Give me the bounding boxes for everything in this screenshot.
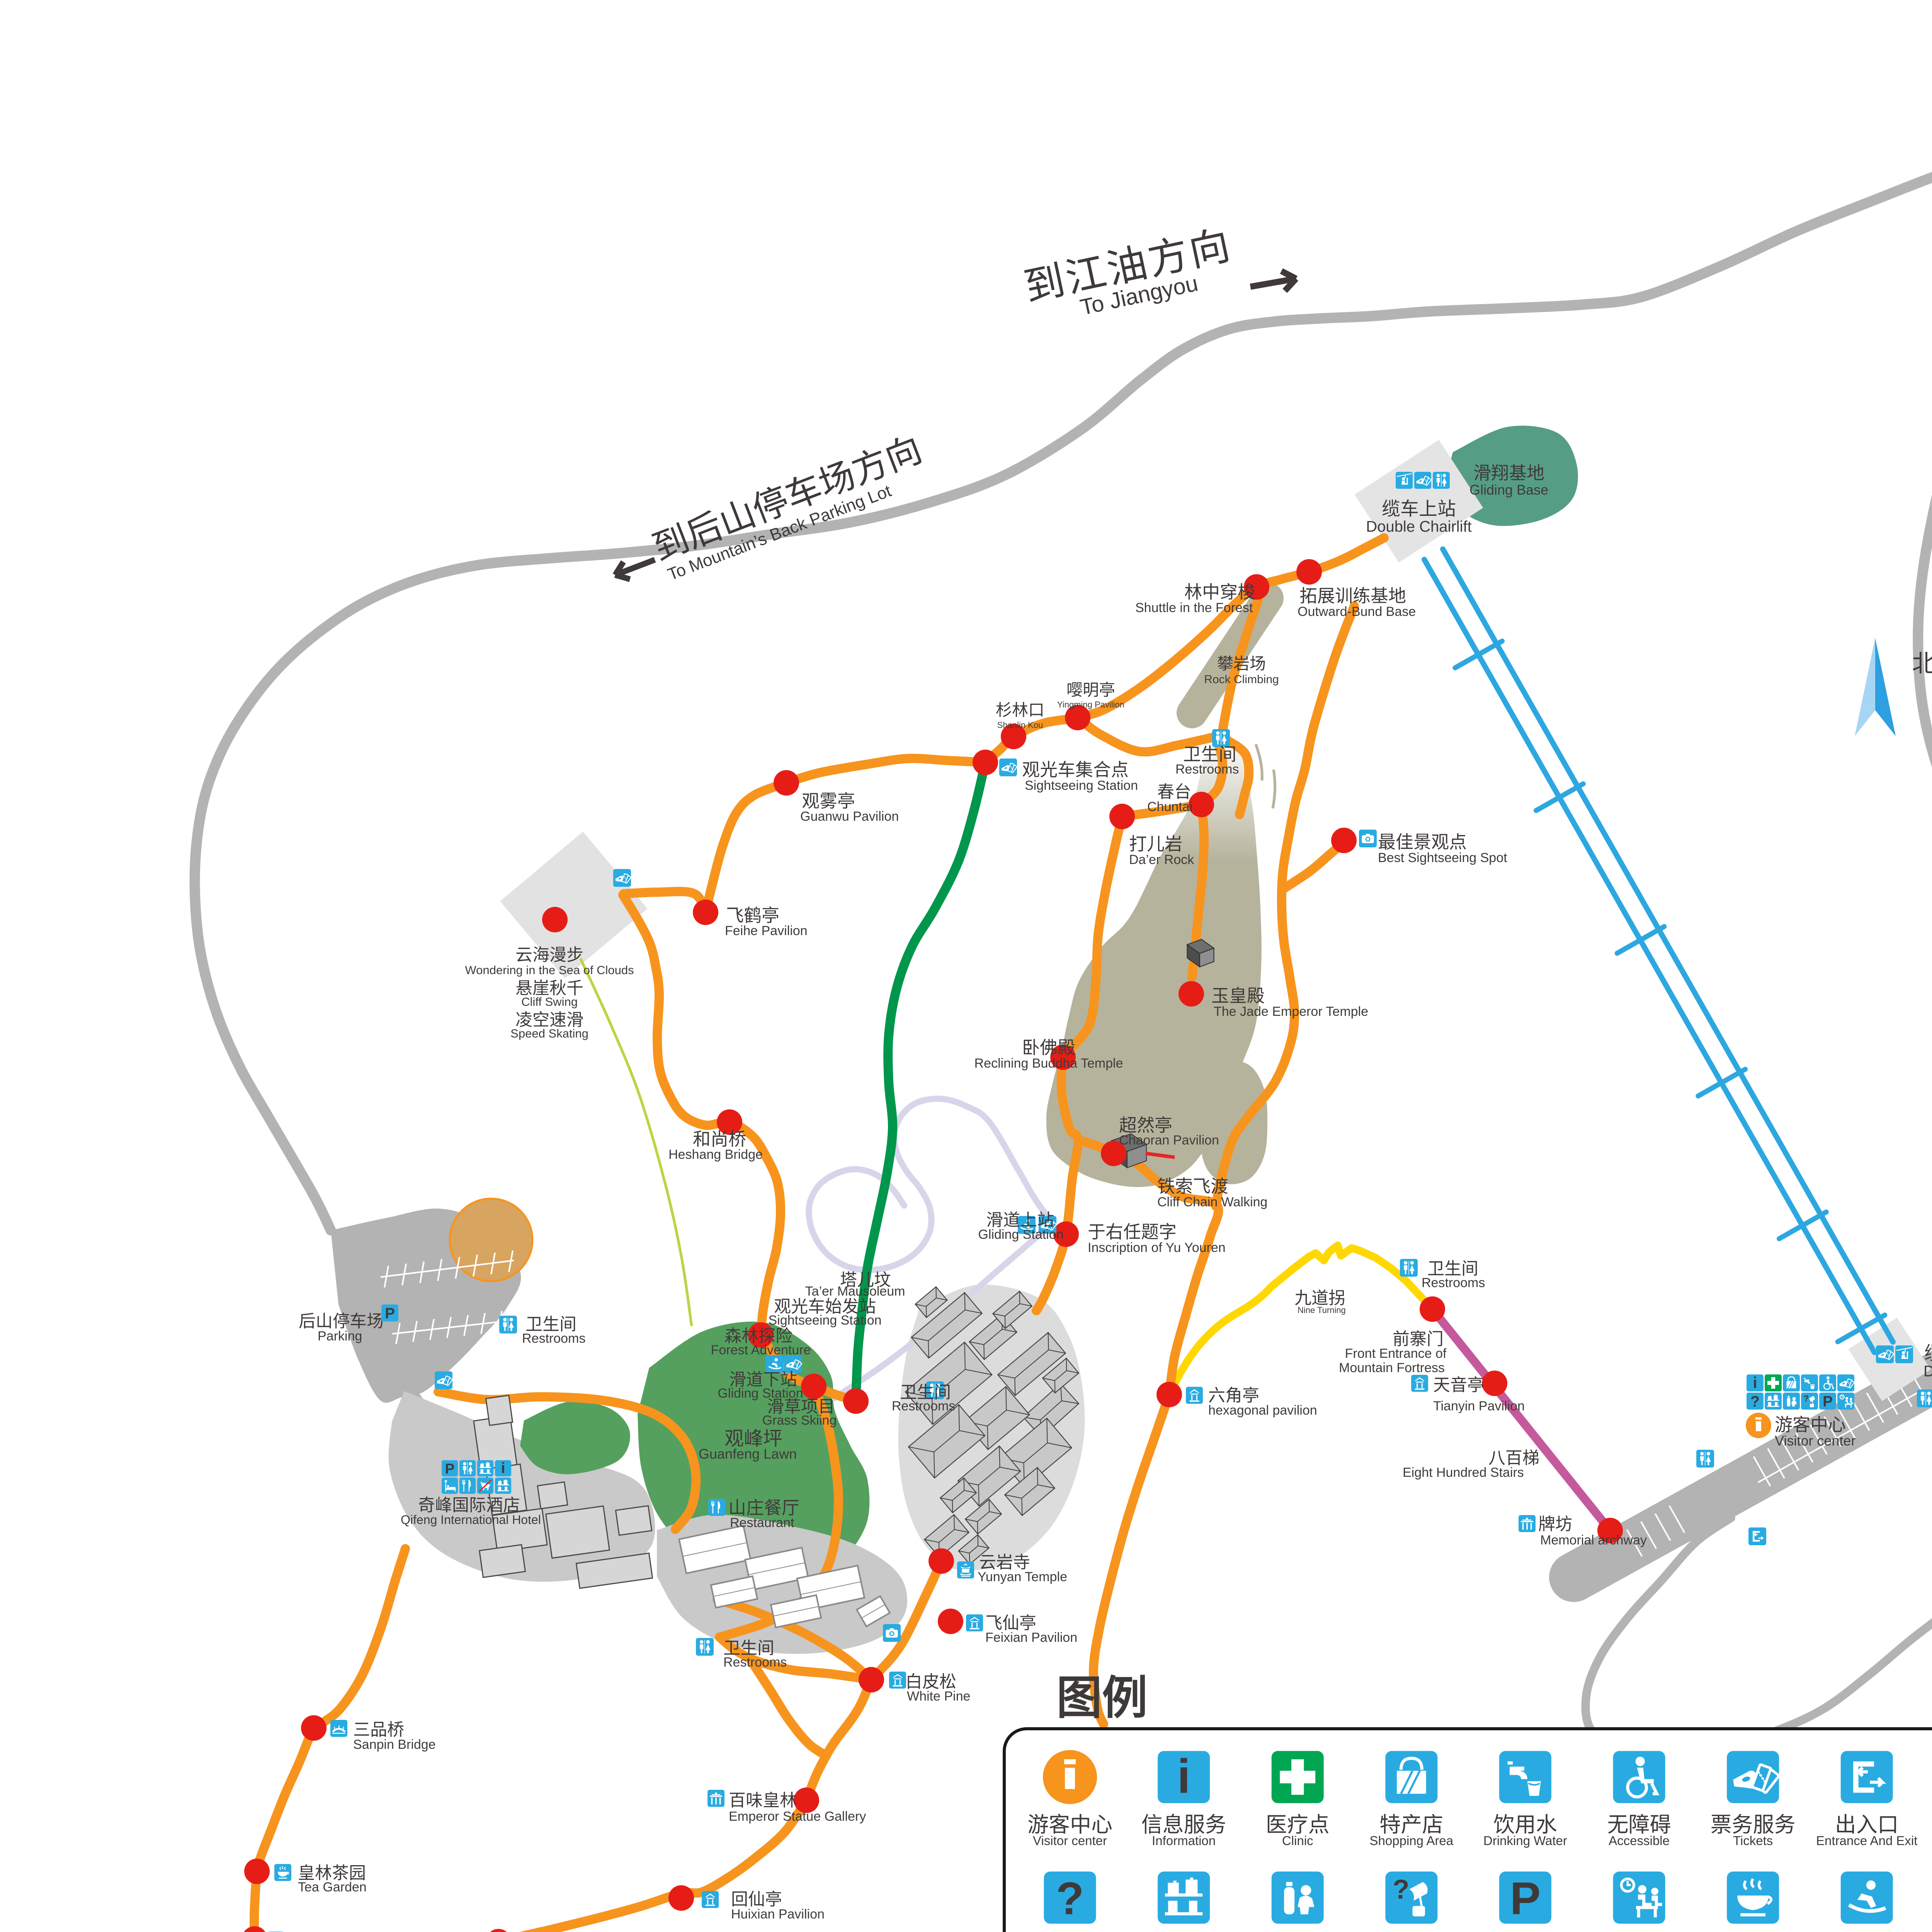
svg-text:Double Chairlift: Double Chairlift bbox=[1923, 1363, 1932, 1380]
svg-text:Entrance And Exit: Entrance And Exit bbox=[1816, 1833, 1917, 1848]
svg-text:医疗点: 医疗点 bbox=[1266, 1813, 1330, 1837]
svg-text:游客中心: 游客中心 bbox=[1027, 1813, 1112, 1837]
svg-text:天音亭: 天音亭 bbox=[1433, 1376, 1484, 1395]
svg-text:信息服务: 信息服务 bbox=[1141, 1813, 1226, 1837]
svg-text:Rock Climbing: Rock Climbing bbox=[1204, 673, 1279, 686]
svg-text:Nine Turning: Nine Turning bbox=[1298, 1305, 1346, 1315]
svg-text:滑道上站: 滑道上站 bbox=[986, 1211, 1054, 1230]
svg-text:Heshang Bridge: Heshang Bridge bbox=[668, 1147, 763, 1162]
svg-text:缆车上站: 缆车上站 bbox=[1382, 499, 1456, 519]
svg-text:Qifeng International Hotel: Qifeng International Hotel bbox=[401, 1513, 541, 1527]
svg-text:出入口: 出入口 bbox=[1835, 1813, 1899, 1837]
svg-text:Ta’er Mausoleum: Ta’er Mausoleum bbox=[805, 1284, 905, 1299]
svg-text:票务服务: 票务服务 bbox=[1711, 1813, 1796, 1837]
svg-text:Huixian Pavilion: Huixian Pavilion bbox=[731, 1907, 825, 1922]
svg-text:卫生间: 卫生间 bbox=[1183, 744, 1236, 764]
svg-text:Restrooms: Restrooms bbox=[522, 1331, 585, 1346]
svg-text:Restrooms: Restrooms bbox=[892, 1399, 955, 1413]
svg-text:游客中心: 游客中心 bbox=[1775, 1415, 1846, 1435]
svg-text:拓展训练基地: 拓展训练基地 bbox=[1299, 586, 1406, 606]
svg-text:玉皇殿: 玉皇殿 bbox=[1211, 986, 1265, 1006]
svg-text:Chuntai: Chuntai bbox=[1147, 799, 1192, 814]
svg-text:Speed Skating: Speed Skating bbox=[510, 1027, 588, 1040]
svg-text:Guanwu Pavilion: Guanwu Pavilion bbox=[800, 809, 899, 824]
svg-text:Restrooms: Restrooms bbox=[1422, 1276, 1485, 1290]
svg-text:Grass Skiing: Grass Skiing bbox=[762, 1413, 837, 1428]
svg-text:Accessible: Accessible bbox=[1609, 1833, 1670, 1848]
svg-text:特产店: 特产店 bbox=[1379, 1813, 1443, 1837]
svg-text:六角亭: 六角亭 bbox=[1208, 1386, 1259, 1405]
svg-text:Information: Information bbox=[1152, 1833, 1216, 1848]
svg-text:The Jade Emperor Temple: The Jade Emperor Temple bbox=[1214, 1004, 1368, 1019]
svg-text:Gliding Station: Gliding Station bbox=[978, 1227, 1063, 1242]
svg-text:牌坊: 牌坊 bbox=[1538, 1515, 1572, 1534]
svg-text:飞仙亭: 飞仙亭 bbox=[985, 1614, 1036, 1633]
svg-text:Gliding Base: Gliding Base bbox=[1469, 482, 1548, 498]
svg-text:杉林口: 杉林口 bbox=[996, 701, 1044, 719]
svg-text:八百梯: 八百梯 bbox=[1488, 1449, 1539, 1468]
svg-text:滑翔基地: 滑翔基地 bbox=[1473, 463, 1544, 483]
svg-text:云海漫步: 云海漫步 bbox=[515, 946, 583, 964]
svg-text:Chaoran Pavilion: Chaoran Pavilion bbox=[1119, 1133, 1219, 1148]
svg-text:林中穿梭: 林中穿梭 bbox=[1184, 582, 1255, 602]
svg-text:Guanfeng Lawn: Guanfeng Lawn bbox=[699, 1446, 797, 1462]
svg-text:Cliff Swing: Cliff Swing bbox=[521, 995, 578, 1009]
svg-text:Reclining Buddha Temple: Reclining Buddha Temple bbox=[975, 1056, 1123, 1071]
svg-text:Shopping Area: Shopping Area bbox=[1370, 1833, 1454, 1848]
svg-text:Feihe Pavilion: Feihe Pavilion bbox=[725, 923, 808, 938]
svg-text:图例: 图例 bbox=[1056, 1673, 1148, 1724]
svg-text:九道拐: 九道拐 bbox=[1294, 1289, 1345, 1308]
svg-text:缆车下站: 缆车下站 bbox=[1924, 1343, 1932, 1364]
svg-text:White Pine: White Pine bbox=[907, 1689, 970, 1704]
svg-text:饮用水: 饮用水 bbox=[1493, 1813, 1557, 1837]
svg-text:Parking: Parking bbox=[318, 1329, 362, 1344]
svg-text:Cliff Chain Walking: Cliff Chain Walking bbox=[1157, 1195, 1267, 1209]
svg-text:最佳景观点: 最佳景观点 bbox=[1378, 832, 1467, 852]
svg-text:Front Entrance of: Front Entrance of bbox=[1345, 1346, 1447, 1361]
svg-text:Restaurant: Restaurant bbox=[730, 1515, 794, 1530]
svg-text:卧佛殿: 卧佛殿 bbox=[1022, 1037, 1075, 1058]
svg-text:百味皇林: 百味皇林 bbox=[729, 1791, 797, 1810]
svg-text:Clinic: Clinic bbox=[1282, 1833, 1313, 1848]
svg-text:Memorial archway: Memorial archway bbox=[1540, 1533, 1647, 1548]
svg-text:Drinking Water: Drinking Water bbox=[1483, 1833, 1567, 1848]
svg-text:无障碍: 无障碍 bbox=[1607, 1813, 1671, 1837]
svg-text:三品桥: 三品桥 bbox=[353, 1720, 404, 1739]
svg-text:嘤明亭: 嘤明亭 bbox=[1066, 681, 1115, 699]
svg-text:Wondering in the Sea of Clouds: Wondering in the Sea of Clouds bbox=[465, 963, 634, 977]
svg-text:北N: 北N bbox=[1912, 650, 1932, 677]
svg-text:攀岩场: 攀岩场 bbox=[1217, 655, 1266, 673]
svg-text:观雾亭: 观雾亭 bbox=[802, 791, 855, 811]
svg-text:奇峰国际酒店: 奇峰国际酒店 bbox=[418, 1496, 520, 1515]
svg-text:Sightseeing Station: Sightseeing Station bbox=[1025, 778, 1138, 793]
svg-text:后山停车场: 后山停车场 bbox=[299, 1312, 384, 1331]
svg-text:Shanlin Kou: Shanlin Kou bbox=[997, 720, 1043, 730]
svg-text:Restrooms: Restrooms bbox=[723, 1655, 787, 1670]
svg-text:飞鹤亭: 飞鹤亭 bbox=[726, 905, 779, 925]
svg-text:Sanpin Bridge: Sanpin Bridge bbox=[353, 1737, 436, 1752]
svg-text:白皮松: 白皮松 bbox=[905, 1672, 956, 1691]
svg-text:回仙亭: 回仙亭 bbox=[731, 1890, 782, 1909]
svg-text:Restrooms: Restrooms bbox=[1175, 762, 1239, 777]
svg-text:Visitor center: Visitor center bbox=[1033, 1833, 1107, 1848]
svg-text:于右任题字: 于右任题字 bbox=[1088, 1222, 1177, 1242]
svg-text:Tickets: Tickets bbox=[1733, 1833, 1773, 1848]
svg-text:Feixian Pavilion: Feixian Pavilion bbox=[985, 1630, 1077, 1645]
svg-text:Yunyan Temple: Yunyan Temple bbox=[978, 1570, 1067, 1584]
svg-text:云岩寺: 云岩寺 bbox=[979, 1553, 1030, 1572]
svg-text:Inscription of Yu Youren: Inscription of Yu Youren bbox=[1088, 1240, 1226, 1255]
svg-text:Best Sightseeing Spot: Best Sightseeing Spot bbox=[1378, 850, 1507, 865]
svg-text:Sightseeing Station: Sightseeing Station bbox=[769, 1313, 882, 1328]
svg-text:前寨门: 前寨门 bbox=[1393, 1330, 1444, 1349]
svg-text:打儿岩: 打儿岩 bbox=[1129, 834, 1182, 854]
svg-text:Mountain Fortress: Mountain Fortress bbox=[1339, 1361, 1445, 1375]
svg-text:铁索飞渡: 铁索飞渡 bbox=[1157, 1176, 1228, 1196]
svg-text:Eight Hundred Stairs: Eight Hundred Stairs bbox=[1403, 1465, 1524, 1480]
svg-text:Shuttle in the Forest: Shuttle in the Forest bbox=[1135, 600, 1253, 615]
svg-text:Outward-Bund Base: Outward-Bund Base bbox=[1298, 604, 1416, 619]
svg-text:Double Chairlift: Double Chairlift bbox=[1366, 518, 1471, 535]
svg-text:超然亭: 超然亭 bbox=[1119, 1115, 1172, 1135]
svg-text:hexagonal pavilion: hexagonal pavilion bbox=[1208, 1403, 1317, 1418]
svg-text:Emperor Statue Gallery: Emperor Statue Gallery bbox=[729, 1809, 866, 1824]
svg-text:Tea Garden: Tea Garden bbox=[298, 1880, 367, 1895]
svg-text:观光车集合点: 观光车集合点 bbox=[1022, 760, 1129, 780]
svg-text:Da’er Rock: Da’er Rock bbox=[1129, 852, 1194, 867]
svg-text:和尚桥: 和尚桥 bbox=[693, 1129, 746, 1149]
svg-text:Visitor center: Visitor center bbox=[1775, 1433, 1855, 1449]
svg-text:Tianyin Pavilion: Tianyin Pavilion bbox=[1433, 1399, 1525, 1413]
svg-text:春台: 春台 bbox=[1157, 782, 1191, 801]
svg-text:Yingming Pavilion: Yingming Pavilion bbox=[1057, 700, 1124, 709]
svg-text:山庄餐厅: 山庄餐厅 bbox=[728, 1498, 799, 1518]
svg-text:Forest Adventure: Forest Adventure bbox=[711, 1343, 811, 1357]
